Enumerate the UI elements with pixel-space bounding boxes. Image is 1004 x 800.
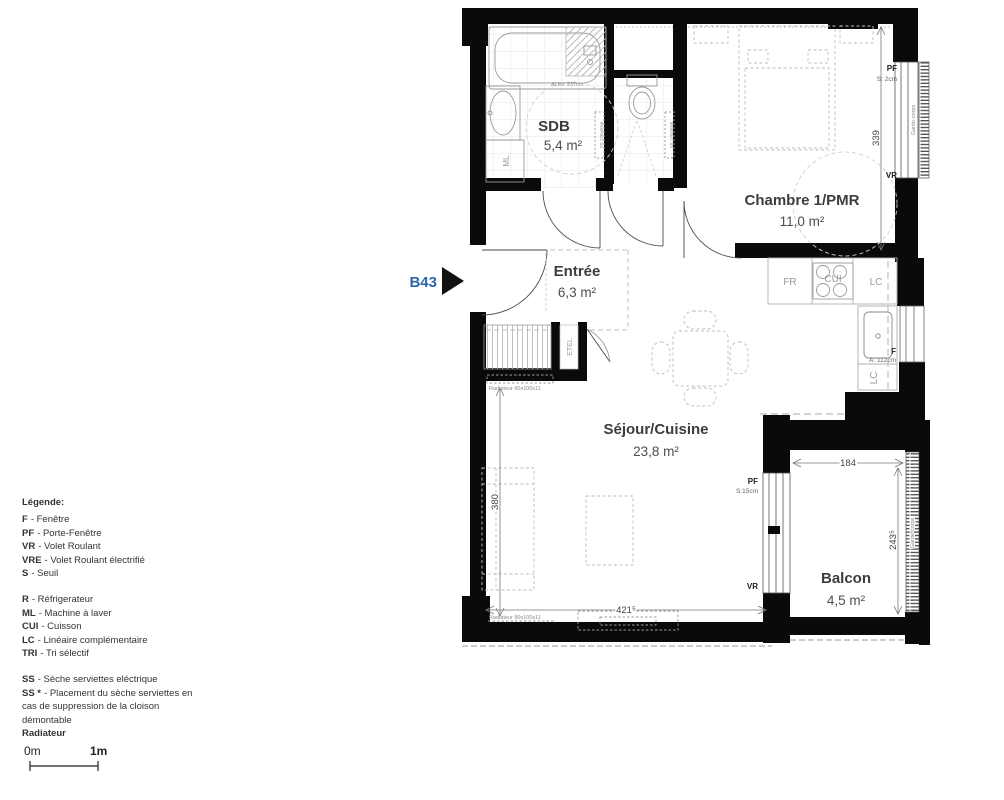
floorplan-page: { "plan": { "unit": "B43", "rooms": { "s… [0, 0, 1004, 800]
scale-one-label: 1m [90, 744, 107, 758]
label-allege-kitchen: A: 112cm [869, 357, 896, 364]
wall-balcony-right [919, 420, 930, 645]
label-radiateur-entree: Radiateur 90x100x11 [489, 386, 541, 392]
label-fridge: FR [783, 277, 796, 288]
legend-item-r: R- Réfrigerateur [22, 593, 198, 606]
wall-sdb-bottom [484, 178, 541, 191]
wall-closet-post-2 [578, 322, 587, 372]
door-bedroom [684, 201, 741, 258]
door-entry [482, 250, 547, 315]
wall-left-upper [470, 40, 486, 245]
closet-hatch [484, 325, 551, 369]
label-seuil-bedroom: S: 2cm [877, 76, 897, 83]
legend-item-lc: LC- Linéaire complémentaire [22, 634, 198, 647]
label-pf-bedroom: PF [887, 64, 897, 73]
legend-group-heating: SS- Sèche serviettes eléctrique SS *- Pl… [22, 673, 198, 740]
legend-item-tri: TRI- Tri sélectif [22, 647, 198, 660]
wall-topright-block [893, 8, 918, 62]
entry-arrow-icon [442, 267, 464, 295]
door-etel [587, 329, 610, 362]
legend-item-radiateur: Radiateur [22, 727, 198, 740]
legend-item-pf: PF- Porte-Fenêtre [22, 527, 198, 540]
entry-closet [484, 325, 578, 369]
bed [739, 26, 835, 150]
scale-zero-label: 0m [24, 744, 41, 758]
chair-top [684, 311, 716, 329]
legend-group-openings: F- Fenêtre PF- Porte-Fenêtre VR- Volet R… [22, 513, 198, 580]
label-vr-sejour: VR [747, 582, 758, 591]
wall-closet-post-1 [551, 322, 560, 372]
door-sdb [543, 191, 600, 248]
door-wc [608, 191, 663, 246]
label-ss-left: SS 170x60x6 [599, 121, 604, 148]
room-area-balcon: 4,5 m² [827, 593, 866, 608]
legend: Légende: F- Fenêtre PF- Porte-Fenêtre VR… [22, 496, 198, 754]
legend-item-ml: ML- Machine à laver [22, 607, 198, 620]
bed-pillow-left [748, 50, 768, 63]
chair-bottom [684, 388, 716, 406]
room-labels: SDB 5,4 m² Chambre 1/PMR 11,0 m² Entrée … [538, 118, 871, 608]
dim-sejour-height: 380 [490, 494, 501, 510]
wall-door-post-1 [596, 178, 613, 191]
legend-item-vre: VRE- Volet Roulant électrifié [22, 554, 198, 567]
wc-tiles [614, 78, 673, 184]
bed-pillow-right [808, 50, 828, 63]
window-kitchen-f [900, 306, 924, 362]
room-area-sdb: 5,4 m² [544, 138, 583, 153]
legend-group-equipment: R- Réfrigerateur ML- Machine à laver CUI… [22, 593, 198, 660]
wall-right-kitchen-upper [897, 258, 924, 306]
legend-item-ss-star: SS *- Placement du sèche serviettes en c… [22, 687, 198, 727]
label-seuil-sejour: S:15cm [736, 488, 758, 495]
room-name-sejour: Séjour/Cuisine [603, 421, 708, 438]
legend-item-ss: SS- Sèche serviettes eléctrique [22, 673, 198, 686]
unit-marker: B43 [409, 267, 464, 295]
legend-item-s: S- Seuil [22, 567, 198, 580]
nightstand-left [694, 26, 728, 43]
wall-balcony-bottom [763, 617, 930, 635]
dining-table [673, 331, 728, 386]
label-washing-machine: ML [502, 155, 511, 167]
unit-id-label: B43 [409, 274, 437, 291]
label-vr-bedroom: VR [886, 171, 897, 180]
room-name-balcon: Balcon [821, 570, 871, 587]
label-guardrail-balcon: Garde-corps [910, 517, 916, 548]
label-f-kitchen: F [891, 347, 896, 356]
room-name-sdb: SDB [538, 118, 570, 135]
room-area-entree: 6,3 m² [558, 285, 597, 300]
window-sejour-pf [763, 473, 790, 593]
label-lc-side: LC [869, 372, 880, 385]
label-pf-sejour: PF [748, 477, 758, 486]
wall-closet-bottom [484, 368, 587, 381]
sink-tap [876, 334, 880, 338]
label-ss-right: SS 170x60x6 [669, 121, 674, 148]
scale-bar: 0m 1m [22, 744, 142, 779]
label-cooktop: CUI [824, 274, 841, 285]
dim-balcon-height: 243⁵ [888, 530, 899, 550]
label-lc-top: LC [870, 277, 883, 288]
shower-hatch [566, 27, 606, 76]
wall-balcony-right-top [905, 420, 930, 452]
legend-item-f: F- Fenêtre [22, 513, 198, 526]
legend-item-vr: VR- Volet Roulant [22, 540, 198, 553]
dim-bedroom-height: 339 [871, 130, 882, 146]
guardrail-bedroom [919, 62, 929, 178]
dim-balcon-width: 184 [840, 458, 856, 469]
wall-wc-top [612, 70, 673, 78]
sofa [482, 468, 534, 590]
radiators [487, 375, 678, 630]
chair-left [652, 342, 670, 374]
bed-duvet [745, 68, 829, 148]
label-radiateur-sejour: Radiateur 90x100x11 [489, 615, 541, 621]
room-name-entree: Entrée [554, 263, 601, 280]
label-guardrail-bedroom: Garde-corps [911, 104, 917, 135]
wall-sdb-bedroom [673, 24, 687, 188]
coffee-table [586, 496, 633, 565]
room-area-sejour: 23,8 m² [633, 444, 679, 459]
windows [763, 62, 929, 612]
label-etel: ETEL [567, 338, 574, 356]
wall-door-post-2 [658, 178, 674, 191]
scale-bar-ruler [22, 758, 132, 774]
room-area-chambre: 11,0 m² [780, 214, 825, 229]
room-name-chambre: Chambre 1/PMR [744, 192, 859, 209]
legend-title: Légende: [22, 496, 198, 509]
dim-sejour-width: 421⁵ [616, 605, 636, 616]
legend-item-cui: CUI- Cuisson [22, 620, 198, 633]
label-alim: ALIM: 237cm [551, 82, 584, 88]
wall-kitchen-bottom [845, 392, 907, 422]
chair-right [730, 342, 748, 374]
